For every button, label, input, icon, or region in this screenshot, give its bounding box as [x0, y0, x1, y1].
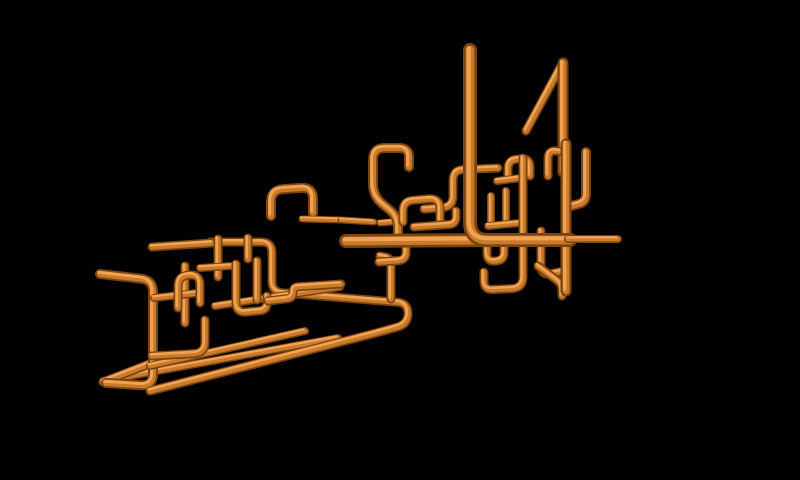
pipe-center-arch [270, 186, 313, 216]
pipe-left-vertical-247 [247, 236, 248, 259]
pipe-cluster-crossbar [487, 221, 520, 226]
pipe-cluster-vertical-a [490, 194, 491, 226]
pipe-thin-runner-b [340, 218, 374, 222]
pipe-thin-runner-a [301, 217, 340, 220]
pipe-left-mid-stub [199, 264, 232, 268]
pipe-left-u-bend [235, 262, 267, 312]
pipe-left-vertical-257 [256, 259, 257, 300]
pipe-left-top-horizontal [151, 241, 212, 247]
pipe-cluster-right-l [570, 150, 586, 206]
pipes-3d-render [0, 0, 800, 480]
pipe-right-main-vertical [565, 142, 566, 291]
pipes-screensaver-scene [0, 0, 800, 480]
pipe-four-diagonal [525, 64, 561, 131]
pipe-cluster-stub-top [496, 176, 521, 181]
pipe-left-l-bend [151, 318, 205, 356]
pipe-left-vertical-218 [217, 237, 218, 277]
pipe-cluster-vertical-b [505, 189, 506, 221]
pipe-right-capped-arm [567, 237, 618, 239]
